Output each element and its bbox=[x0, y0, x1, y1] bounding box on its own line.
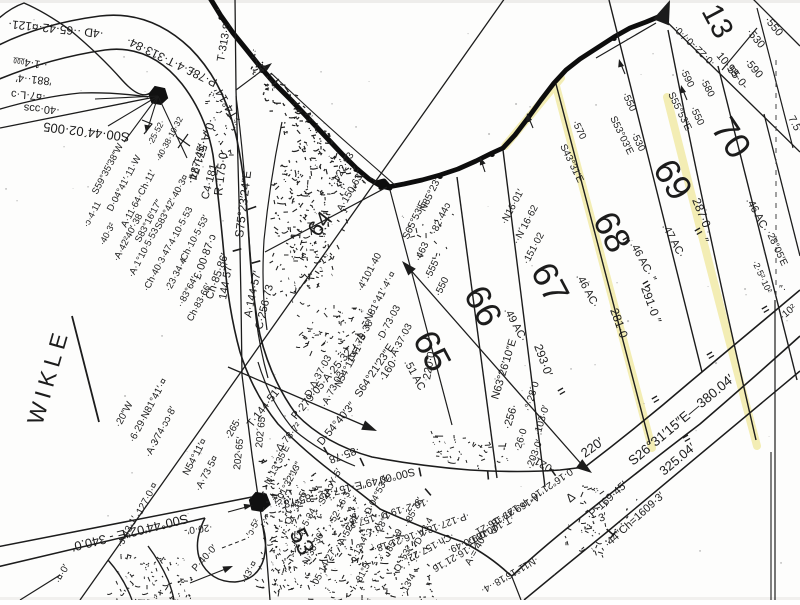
svg-text:′′·: ′′· bbox=[779, 284, 786, 295]
svg-text:·40·ɔɔs: ·40·ɔɔs bbox=[23, 101, 60, 116]
svg-text:·¤7·L·ɔ: ·¤7·L·ɔ bbox=[10, 88, 46, 102]
